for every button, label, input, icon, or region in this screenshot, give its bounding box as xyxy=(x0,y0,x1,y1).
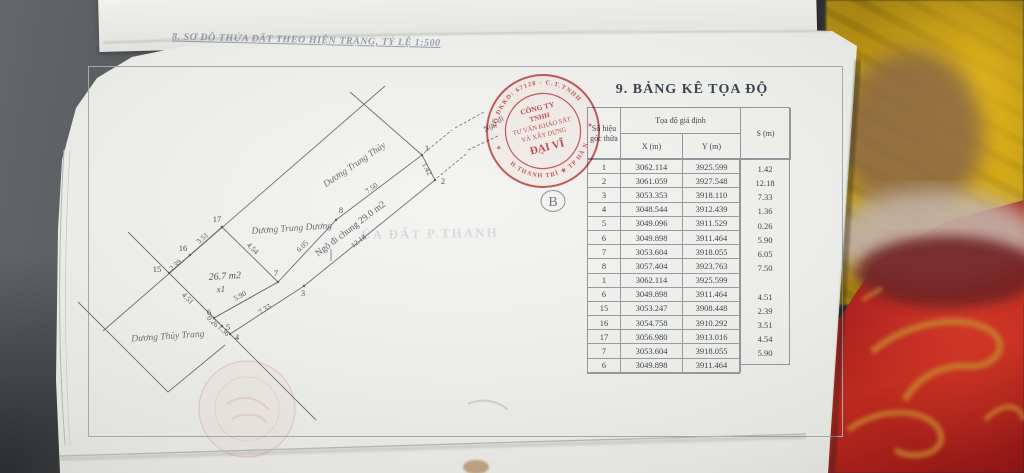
cell-id: 7 xyxy=(588,245,621,259)
s-value: 4.51 xyxy=(741,292,789,302)
s-value: 12.18 xyxy=(741,178,789,188)
cell-x: 3049.898 xyxy=(621,359,683,373)
cell-id: 6 xyxy=(588,288,621,302)
s-value: 2.39 xyxy=(741,306,789,316)
cell-x: 3061.059 xyxy=(621,174,683,188)
s-value: 5.90 xyxy=(741,348,789,358)
cell-id: 8 xyxy=(588,259,621,273)
cell-x: 3062.114 xyxy=(621,274,683,288)
cell-id: 3 xyxy=(588,188,621,202)
header-s: S (m) xyxy=(741,108,791,160)
s-column: 1.42 12.18 7.33 1.36 0.26 5.90 6.05 7.50… xyxy=(740,159,790,365)
cell-x: 3049.898 xyxy=(621,288,683,302)
cell-y: 3908.448 xyxy=(683,302,741,316)
cell-id: 6 xyxy=(588,359,621,373)
cell-x: 3062.114 xyxy=(621,160,683,174)
cell-y: 3912.439 xyxy=(683,203,741,217)
cell-y: 3918.055 xyxy=(683,245,741,259)
s-value: 7.33 xyxy=(741,192,789,202)
header-x: X (m) xyxy=(621,134,683,160)
coordinate-table-title: 9. BẢNG KÊ TỌA ĐỘ xyxy=(592,82,792,98)
cell-y: 3911.464 xyxy=(683,231,741,245)
cell-y: 3911.529 xyxy=(683,217,741,231)
cell-id: 2 xyxy=(588,174,621,188)
cell-y: 3925.599 xyxy=(683,160,741,174)
cell-id: 1 xyxy=(588,160,621,174)
cell-y: 3918.055 xyxy=(683,344,741,358)
table-header: Số hiệu góc thửa Tọa độ giả định S (m) X… xyxy=(587,107,790,159)
cell-y: 3923.763 xyxy=(683,259,741,273)
cell-y: 3913.016 xyxy=(683,330,741,344)
cell-id: 4 xyxy=(588,203,621,217)
header-coord-group: Tọa độ giả định xyxy=(621,108,741,134)
cell-x: 3053.604 xyxy=(621,245,683,259)
cell-y: 3927.548 xyxy=(683,174,741,188)
cell-x: 3049.096 xyxy=(621,217,683,231)
cell-x: 3053.353 xyxy=(621,188,683,202)
cell-x: 3049.898 xyxy=(621,231,683,245)
cell-x: 3057.404 xyxy=(621,259,683,273)
header-point-line1: Số hiệu xyxy=(592,124,616,133)
cell-id: 16 xyxy=(588,316,621,330)
s-value: 1.42 xyxy=(741,164,789,174)
cell-x: 3048.544 xyxy=(621,203,683,217)
s-value: 0.26 xyxy=(741,221,789,231)
s-value: 3.51 xyxy=(741,320,789,330)
cell-x: 3053.247 xyxy=(621,302,683,316)
table-body: 13062.1143925.599 23061.0593927.548 3305… xyxy=(587,159,740,374)
cell-id: 7 xyxy=(588,344,621,358)
s-value: 5.90 xyxy=(741,235,789,245)
cell-x: 3053.604 xyxy=(621,344,683,358)
cell-y: 3918.110 xyxy=(683,188,741,202)
s-value: 4.54 xyxy=(741,334,789,344)
photo-of-document: 8. SƠ ĐỒ THỬA ĐẤT THEO HIỆN TRẠNG, TỶ LỆ… xyxy=(0,0,1024,473)
header-point-number: Số hiệu góc thửa xyxy=(588,108,621,160)
cell-y: 3925.599 xyxy=(683,274,741,288)
cell-x: 3054.758 xyxy=(621,316,683,330)
cell-id: 15 xyxy=(588,302,621,316)
cell-id: 1 xyxy=(588,274,621,288)
s-value: 7.50 xyxy=(741,263,789,273)
coordinate-table: Số hiệu góc thửa Tọa độ giả định S (m) X… xyxy=(587,107,790,373)
cell-y: 3911.464 xyxy=(683,288,741,302)
cell-id: 5 xyxy=(588,217,621,231)
s-value: 6.05 xyxy=(741,249,789,259)
s-value: 1.36 xyxy=(741,206,789,216)
header-point-line2: góc thửa xyxy=(590,134,618,143)
cell-x: 3056.980 xyxy=(621,330,683,344)
cell-y: 3910.292 xyxy=(683,316,741,330)
cell-id: 6 xyxy=(588,231,621,245)
header-y: Y (m) xyxy=(683,134,741,160)
cell-id: 17 xyxy=(588,330,621,344)
cell-y: 3911.464 xyxy=(683,359,741,373)
